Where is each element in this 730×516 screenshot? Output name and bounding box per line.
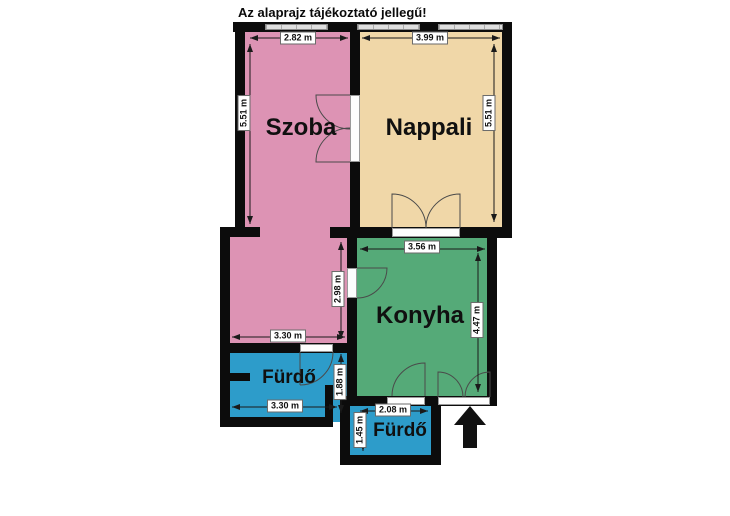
room-label-furdo-small: Fürdő (373, 420, 427, 442)
dim-label-hall-width: 3.30 m (270, 330, 306, 343)
dim-label-furdo-height: 1.88 m (334, 364, 347, 400)
dim-label-konyha-width: 3.56 m (404, 241, 440, 254)
door-arc-entrance (438, 372, 490, 397)
door-arc-konyha-furdo2 (392, 363, 425, 396)
room-label-szoba: Szoba (266, 114, 337, 142)
entrance-arrow-stem (463, 424, 477, 448)
dim-label-szoba-height: 5.51 m (238, 95, 251, 131)
room-label-konyha: Konyha (376, 302, 464, 330)
dim-label-furdo2-height: 1.45 m (354, 412, 367, 448)
dim-label-hall-height: 2.98 m (332, 271, 345, 307)
dimension-lines (232, 38, 500, 451)
dim-label-konyha-height: 4.47 m (471, 302, 484, 338)
room-label-furdo-large: Fürdő (262, 367, 316, 389)
dim-label-furdo2-width: 2.08 m (375, 404, 411, 417)
dim-label-nappali-width: 3.99 m (412, 32, 448, 45)
door-arc-nappali (392, 194, 460, 228)
door-arc-hall-konyha (357, 268, 387, 298)
entrance-arrow-head (454, 406, 486, 425)
dim-label-furdo-width: 3.30 m (267, 400, 303, 413)
room-label-nappali: Nappali (386, 114, 473, 142)
floorplan-canvas: Az alaprajz tájékoztató jellegű! (0, 0, 730, 516)
dim-label-nappali-height: 5.51 m (483, 95, 496, 131)
dim-label-szoba-width: 2.82 m (280, 32, 316, 45)
